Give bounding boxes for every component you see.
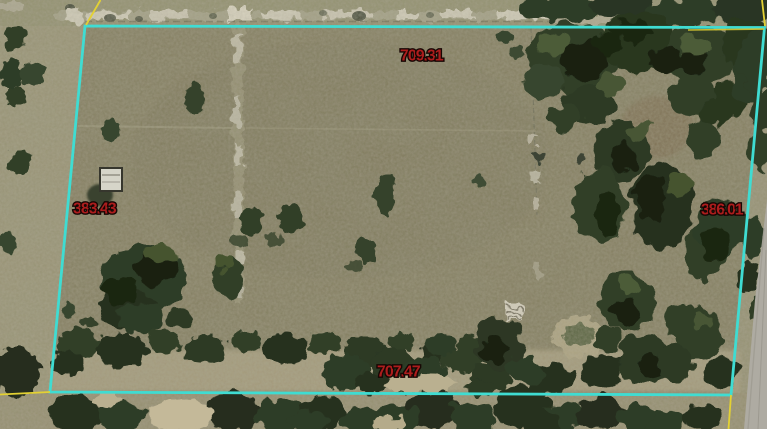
svg-text:386.01: 386.01	[701, 202, 744, 219]
svg-text:707.47: 707.47	[377, 364, 421, 381]
svg-text:709.31: 709.31	[400, 48, 444, 65]
svg-text:383.43: 383.43	[73, 201, 117, 218]
